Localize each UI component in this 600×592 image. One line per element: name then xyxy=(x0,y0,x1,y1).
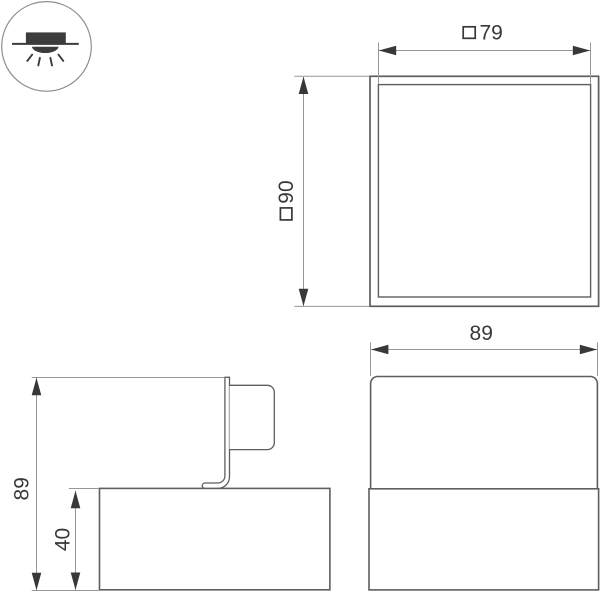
svg-text:89: 89 xyxy=(470,322,493,345)
svg-text:90: 90 xyxy=(275,180,298,203)
svg-text:79: 79 xyxy=(480,21,503,44)
svg-text:40: 40 xyxy=(51,528,74,551)
svg-text:89: 89 xyxy=(11,477,34,500)
